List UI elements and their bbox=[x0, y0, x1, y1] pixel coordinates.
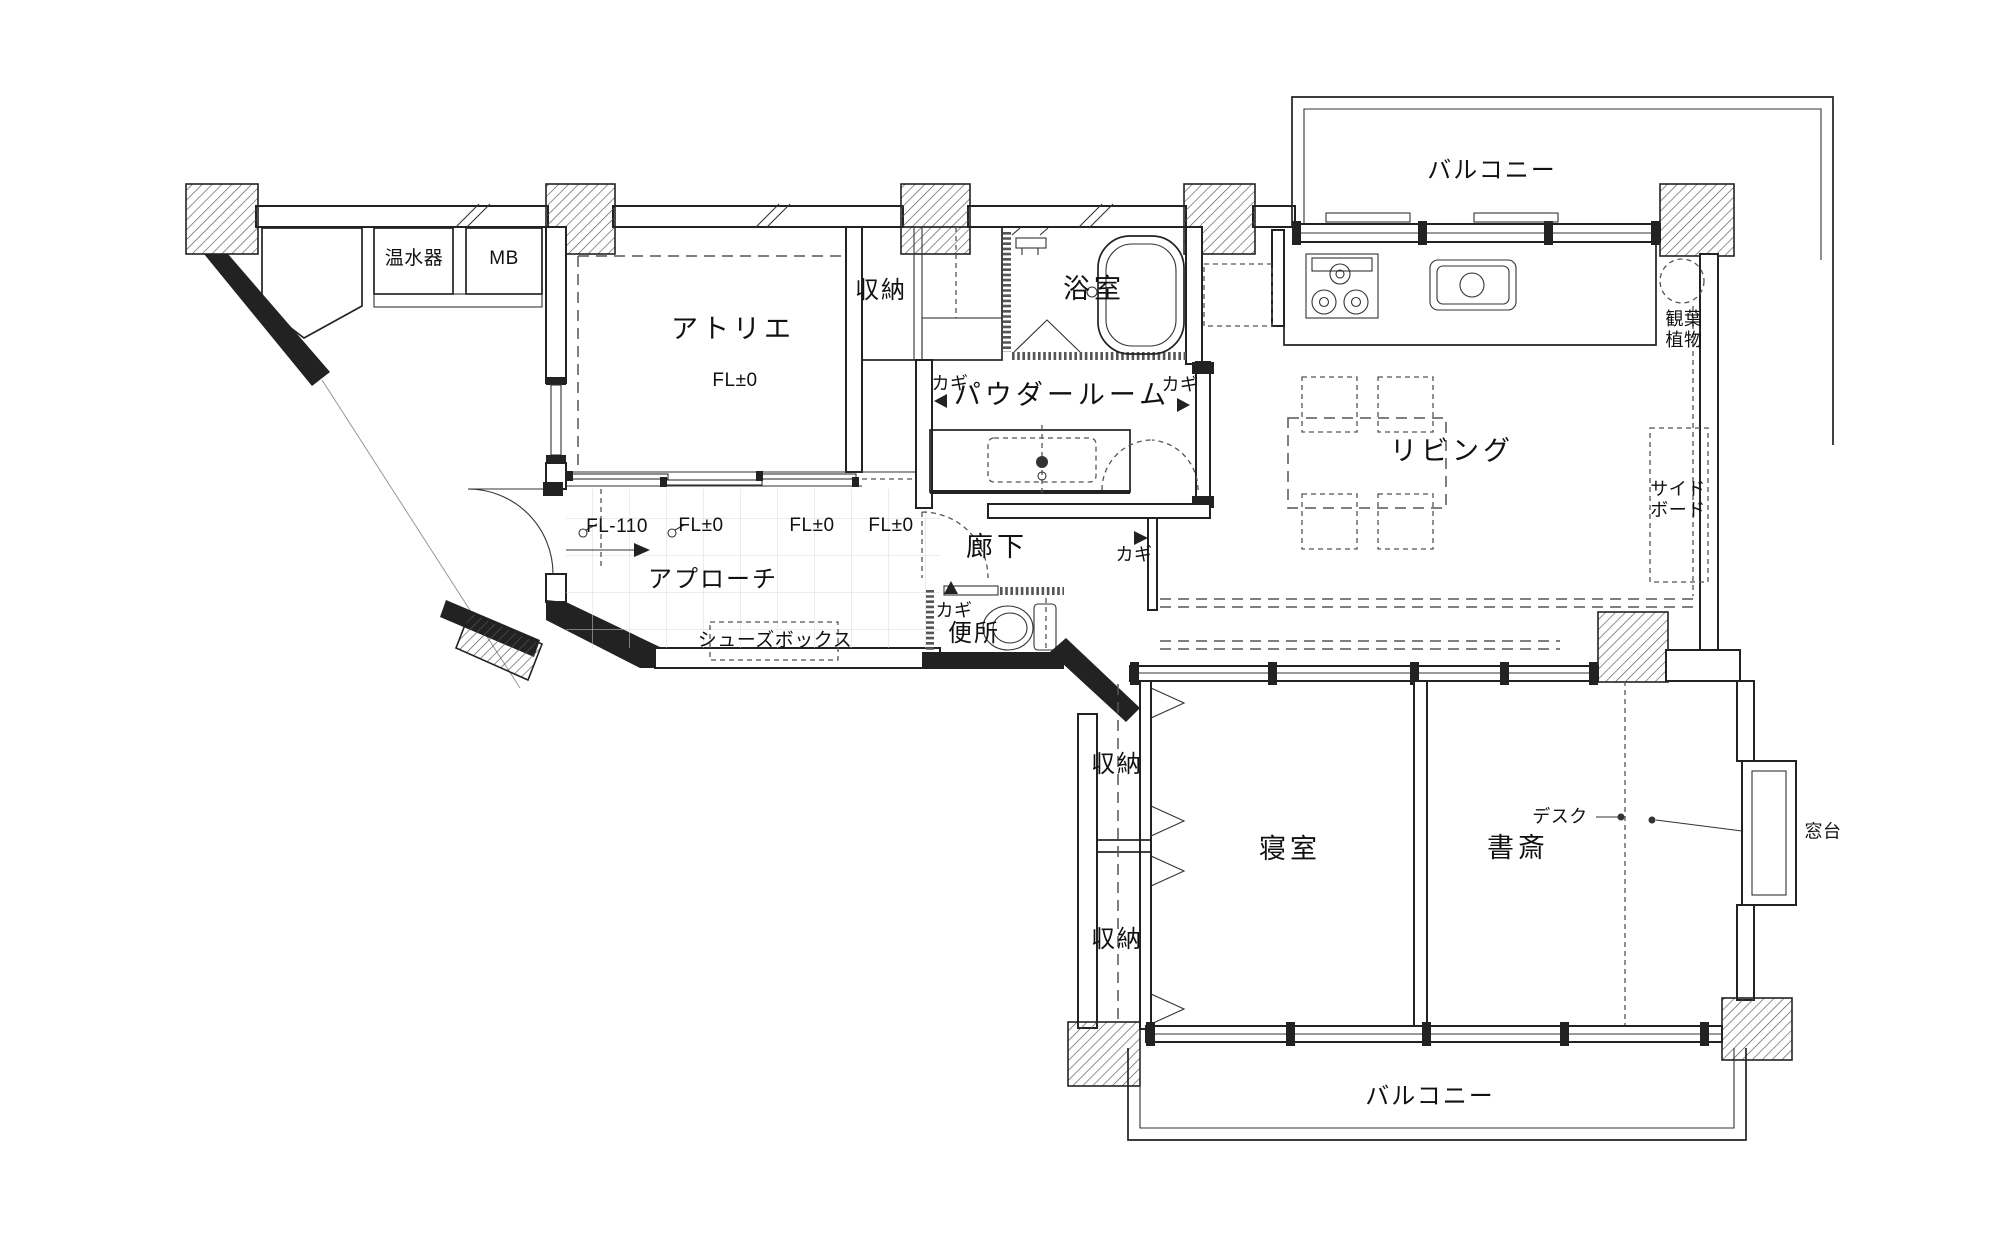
shoes-box-label: シューズボックス bbox=[698, 630, 852, 652]
houseplant-symbol bbox=[1660, 259, 1704, 303]
room-label-corridor: 廊下 bbox=[966, 532, 1028, 564]
balcony-top-outline bbox=[1292, 97, 1833, 445]
room-label-bathroom: 浴室 bbox=[1063, 274, 1125, 306]
sideboard-label: サイド ボード bbox=[1650, 479, 1706, 521]
bedroom-study-wing bbox=[1068, 612, 1797, 1086]
room-label-bedroom: 寝室 bbox=[1259, 834, 1321, 866]
floor-plan-drawing bbox=[0, 0, 2008, 1255]
room-label-study: 書斎 bbox=[1487, 833, 1549, 865]
water-heater-label: 温水器 bbox=[385, 248, 444, 270]
utility-closets bbox=[262, 228, 542, 338]
window-sill-label: 窓台 bbox=[1805, 821, 1842, 842]
room-label-living: リビング bbox=[1390, 436, 1514, 468]
atelier-room bbox=[566, 227, 920, 487]
chair bbox=[1378, 377, 1433, 432]
chair bbox=[1302, 494, 1357, 549]
floor-level-entry: FL-110 bbox=[586, 516, 648, 538]
chair bbox=[1302, 377, 1357, 432]
key-arrow-right-icon bbox=[1134, 531, 1148, 545]
key-label-corridor: カギ bbox=[1116, 544, 1153, 565]
floor-level-atelier: FL±0 bbox=[712, 370, 757, 392]
room-label-atelier: アトリエ bbox=[671, 314, 795, 346]
room-label-toilet: 便所 bbox=[948, 620, 1000, 648]
room-label-storage-lower: 収納 bbox=[1091, 926, 1143, 954]
key-label-powder-west: カギ bbox=[932, 373, 969, 394]
key-arrow-up-icon bbox=[944, 581, 958, 594]
kitchen-fixtures bbox=[1204, 230, 1656, 345]
room-label-storage-upper: 収納 bbox=[1091, 751, 1143, 779]
meter-box-label: MB bbox=[489, 248, 519, 270]
floor-level-approach-3: FL±0 bbox=[868, 515, 913, 537]
key-label-toilet: カギ bbox=[936, 600, 973, 621]
room-label-balcony-top: バルコニー bbox=[1427, 157, 1557, 185]
key-arrow-left-icon bbox=[934, 394, 947, 408]
hall-storage bbox=[862, 227, 1002, 508]
key-arrow-right-icon bbox=[1177, 398, 1190, 412]
key-label-powder-east: カギ bbox=[1162, 374, 1199, 395]
floor-level-approach-2: FL±0 bbox=[789, 515, 834, 537]
houseplant-label: 観葉 植物 bbox=[1666, 309, 1703, 351]
room-label-powder-room: パウダールーム bbox=[954, 380, 1170, 412]
desk-label: デスク bbox=[1532, 806, 1588, 827]
room-label-balcony-bottom: バルコニー bbox=[1365, 1083, 1495, 1111]
room-label-storage-top: 収納 bbox=[855, 277, 907, 305]
chair bbox=[1378, 494, 1433, 549]
room-label-approach: アプローチ bbox=[648, 566, 778, 594]
floor-plan: 温水器 MB アトリエ FL±0 収納 浴室 パウダールーム カギ カギ リビン… bbox=[0, 0, 2008, 1255]
floor-level-approach-1: FL±0 bbox=[678, 515, 723, 537]
